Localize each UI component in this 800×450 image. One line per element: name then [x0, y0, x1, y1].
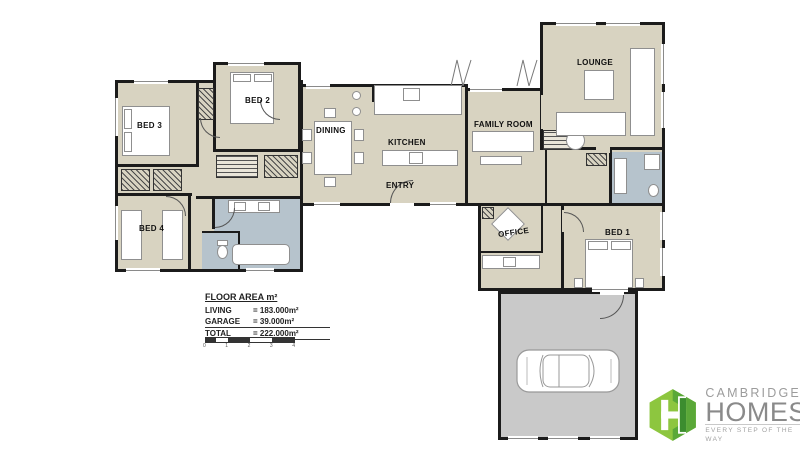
window: [246, 268, 274, 273]
wall: [188, 193, 191, 269]
bed1-side-table: [635, 278, 644, 288]
window: [592, 287, 628, 292]
break-line-marker: [450, 58, 472, 86]
window: [113, 98, 118, 136]
dining-chair: [354, 129, 364, 141]
bed1-pillow: [588, 241, 608, 250]
entry-label: ENTRY: [386, 181, 414, 190]
family-sofa: [472, 131, 534, 152]
scale-tick-labels: 0 1 2 3 4: [203, 343, 295, 349]
lounge-sofa-return: [630, 48, 655, 136]
toilet-cistern: [217, 240, 228, 246]
scale-tick: 4: [292, 343, 295, 349]
island-sink: [409, 152, 423, 164]
logo-brand-word: HOMES: [705, 400, 800, 424]
bed1-label: BED 1: [605, 228, 630, 237]
scale-segment: [216, 338, 228, 342]
vanity-basin: [258, 202, 270, 211]
break-line-marker: [516, 58, 538, 86]
bed3-wardrobe: [121, 169, 150, 191]
scale-segment: [228, 338, 250, 342]
area-value: = 183.000m²: [253, 305, 299, 316]
lounge-label: LOUNGE: [577, 58, 613, 67]
dining-label: DINING: [316, 126, 346, 135]
wall: [118, 193, 192, 196]
window: [306, 84, 330, 89]
entry-door-opening: [390, 203, 414, 207]
area-label: LIVING: [205, 305, 253, 316]
area-label: GARAGE: [205, 316, 253, 327]
column: [352, 91, 361, 100]
area-row-garage: GARAGE = 39.000m²: [205, 316, 330, 328]
ensuite-vanity: [614, 158, 627, 194]
garage-door-panel: [508, 436, 538, 441]
window: [134, 79, 168, 84]
scale-tick: 0: [203, 343, 206, 349]
laundry-tub: [503, 257, 516, 267]
window: [314, 202, 340, 207]
wall: [481, 251, 543, 253]
dining-chair: [324, 108, 336, 118]
bed4-bed-single: [162, 210, 183, 260]
office-storage: [482, 207, 494, 219]
area-value: = 39.000m²: [253, 316, 294, 327]
dining-chair: [302, 129, 312, 141]
window: [113, 206, 118, 240]
wall: [609, 150, 612, 203]
bathtub: [232, 244, 290, 265]
wall: [202, 231, 240, 233]
window: [660, 212, 665, 240]
wall: [545, 150, 547, 206]
family-ottoman: [480, 156, 522, 165]
window: [661, 92, 666, 128]
area-row-living: LIVING = 183.000m²: [205, 305, 330, 316]
door-opening: [596, 147, 610, 153]
bed1-pillow: [611, 241, 631, 250]
logo-text: CAMBRIDGE HOMES EVERY STEP OF THE WAY: [705, 387, 800, 444]
bed3-label: BED 3: [137, 121, 162, 130]
linen-cupboard: [216, 155, 258, 178]
window: [470, 87, 502, 92]
kitchen-label: KITCHEN: [388, 138, 426, 147]
bed2-label: BED 2: [245, 96, 270, 105]
bed4-wardrobe: [153, 169, 182, 191]
bed2-pillow: [233, 74, 251, 82]
scale-tick: 1: [225, 343, 228, 349]
column: [352, 107, 361, 116]
scale-segment: [206, 338, 216, 342]
scale-tick: 2: [248, 343, 251, 349]
vanity-basin: [234, 202, 246, 211]
ensuite-toilet: [648, 184, 659, 197]
ensuite-shower: [644, 154, 660, 170]
kitchen-sink: [403, 88, 420, 101]
floor-area-title: FLOOR AREA m²: [205, 292, 330, 302]
window: [228, 61, 264, 66]
lounge-coffee-table: [584, 70, 614, 100]
garage-door-panel: [590, 436, 620, 441]
garage-door-panel: [548, 436, 578, 441]
window: [661, 44, 666, 84]
hall-wardrobe: [198, 88, 214, 120]
dining-chair: [324, 177, 336, 187]
lounge-sofa: [556, 112, 626, 136]
car: [515, 347, 621, 395]
scale-tick: 3: [270, 343, 273, 349]
window: [430, 202, 456, 207]
window: [606, 21, 640, 26]
bed4-bed-single: [121, 210, 142, 260]
bed2-wardrobe: [264, 155, 298, 178]
walkin-wardrobe: [586, 153, 607, 166]
door-opening: [541, 95, 545, 129]
bed1-side-table: [574, 278, 583, 288]
dining-chair: [354, 152, 364, 164]
bed3-pillow: [124, 109, 132, 129]
logo-tagline: EVERY STEP OF THE WAY: [705, 424, 800, 444]
logo-hexagon-icon: [646, 386, 699, 444]
floor-plan-canvas: BED 3 BED 2 BED 4 DINING KITCHEN ENTRY F…: [0, 0, 800, 450]
toilet: [217, 245, 228, 259]
window: [660, 248, 665, 276]
floor-area-table: FLOOR AREA m² LIVING = 183.000m² GARAGE …: [205, 292, 330, 340]
scale-segment: [250, 338, 272, 342]
family-room-label: FAMILY ROOM: [474, 120, 533, 129]
wall: [118, 164, 199, 167]
window: [556, 21, 596, 26]
bed4-label: BED 4: [139, 224, 164, 233]
dining-chair: [302, 152, 312, 164]
window: [126, 268, 160, 273]
cambridge-homes-logo: CAMBRIDGE HOMES EVERY STEP OF THE WAY: [646, 386, 800, 444]
bed3-pillow: [124, 132, 132, 152]
wall: [541, 206, 543, 253]
bed2-pillow: [254, 74, 272, 82]
scale-segment: [272, 338, 294, 342]
